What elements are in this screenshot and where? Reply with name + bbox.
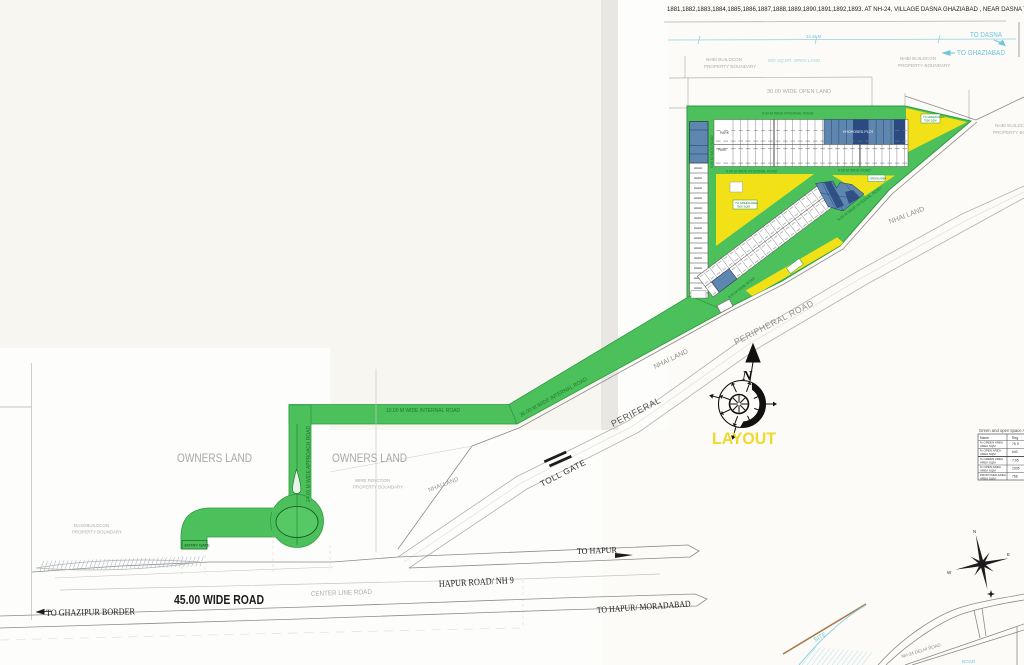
svg-text:NHB/ BUILDCON: NHB/ BUILDCON bbox=[900, 56, 936, 61]
svg-text:TO GHAZIABAD: TO GHAZIABAD bbox=[957, 48, 1005, 57]
svg-text:76 S: 76 S bbox=[1012, 442, 1020, 446]
svg-text:Reg: Reg bbox=[1012, 436, 1018, 440]
svg-text:AREA SQM: AREA SQM bbox=[980, 452, 996, 456]
svg-text:Green and open space Area: Green and open space Area bbox=[979, 428, 1024, 433]
svg-text:NHB/ BUILDCO: NHB/ BUILDCO bbox=[995, 123, 1024, 128]
svg-text:N: N bbox=[741, 369, 753, 384]
svg-text:1005: 1005 bbox=[1012, 467, 1020, 471]
svg-text:9.00 M WIDE INTERNAL ROAD: 9.00 M WIDE INTERNAL ROAD bbox=[762, 112, 814, 116]
svg-text:7500 SQM: 7500 SQM bbox=[924, 119, 936, 123]
svg-text:PROPERTY BOUNDARY: PROPERTY BOUNDARY bbox=[353, 485, 403, 490]
svg-text:GREEN AREA: GREEN AREA bbox=[870, 177, 887, 181]
svg-text:PROPERTY BO: PROPERTY BO bbox=[993, 130, 1024, 135]
svg-text:LAYOUT: LAYOUT bbox=[712, 430, 776, 448]
svg-text:30.00 WIDE OPEN LAND: 30.00 WIDE OPEN LAND bbox=[767, 89, 831, 95]
svg-text:6.00 M WIDE ROAD: 6.00 M WIDE ROAD bbox=[838, 169, 871, 173]
svg-text:ROAD: ROAD bbox=[962, 659, 976, 664]
svg-text:640: 640 bbox=[1012, 450, 1018, 454]
svg-text:PROPERTY BOUNDARY: PROPERTY BOUNDARY bbox=[704, 64, 756, 69]
svg-text:OWNERS LAND: OWNERS LAND bbox=[177, 453, 252, 465]
svg-text:600 SQ.MT. OPEN LAND: 600 SQ.MT. OPEN LAND bbox=[768, 58, 821, 63]
svg-text:9.00 M WIDE ROAD: 9.00 M WIDE ROAD bbox=[710, 135, 714, 168]
svg-text:34.44 M: 34.44 M bbox=[806, 34, 822, 39]
svg-text:9.00 M WIDE INTERNAL ROAD: 9.00 M WIDE INTERNAL ROAD bbox=[726, 170, 778, 174]
svg-text:PROPERTY BOUNDARY: PROPERTY BOUNDARY bbox=[72, 530, 122, 535]
svg-text:768: 768 bbox=[1012, 475, 1018, 479]
svg-text:24.00 M WIDE APPROACH ROAD: 24.00 M WIDE APPROACH ROAD bbox=[306, 426, 312, 502]
svg-text:1881,1882,1883,1884,1885,1886,: 1881,1882,1883,1884,1885,1886,1887,1888,… bbox=[667, 6, 1024, 13]
svg-text:10.00 M WIDE INTERNAL ROAD: 10.00 M WIDE INTERNAL ROAD bbox=[386, 408, 460, 414]
svg-text:E: E bbox=[1007, 552, 1010, 557]
svg-text:AREA SQM: AREA SQM bbox=[980, 476, 996, 480]
svg-text:PROPERTY BOUNDARY: PROPERTY BOUNDARY bbox=[898, 63, 950, 68]
svg-text:AREA SQM: AREA SQM bbox=[980, 468, 996, 472]
svg-text:TO HAPUR: TO HAPUR bbox=[577, 545, 618, 556]
svg-text:PARK: PARK bbox=[720, 131, 730, 135]
svg-text:AREA SQM: AREA SQM bbox=[980, 460, 996, 464]
svg-text:NHB/ BUILDCON: NHB/ BUILDCON bbox=[706, 57, 742, 62]
svg-text:7500 SQM: 7500 SQM bbox=[737, 205, 751, 209]
svg-text:AREA SQM: AREA SQM bbox=[980, 444, 996, 448]
svg-text:7% GREEN AREA: 7% GREEN AREA bbox=[923, 115, 945, 119]
svg-text:TO GHAZIPUR BORDER: TO GHAZIPUR BORDER bbox=[46, 607, 136, 619]
svg-text:45.00 WIDE ROAD: 45.00 WIDE ROAD bbox=[174, 592, 264, 607]
svg-text:ENTRY GATE: ENTRY GATE bbox=[185, 543, 210, 548]
svg-text:OWNERS LAND: OWNERS LAND bbox=[332, 453, 407, 465]
svg-text:7.95: 7.95 bbox=[1012, 459, 1019, 463]
svg-text:DASGBUILDCON: DASGBUILDCON bbox=[74, 523, 109, 528]
svg-text:TO DASNA: TO DASNA bbox=[970, 30, 1002, 39]
svg-text:N: N bbox=[973, 529, 976, 534]
svg-text:PARK: PARK bbox=[718, 148, 727, 152]
svg-text:Name: Name bbox=[980, 436, 989, 440]
svg-text:WIRE FENCTION: WIRE FENCTION bbox=[355, 478, 390, 483]
